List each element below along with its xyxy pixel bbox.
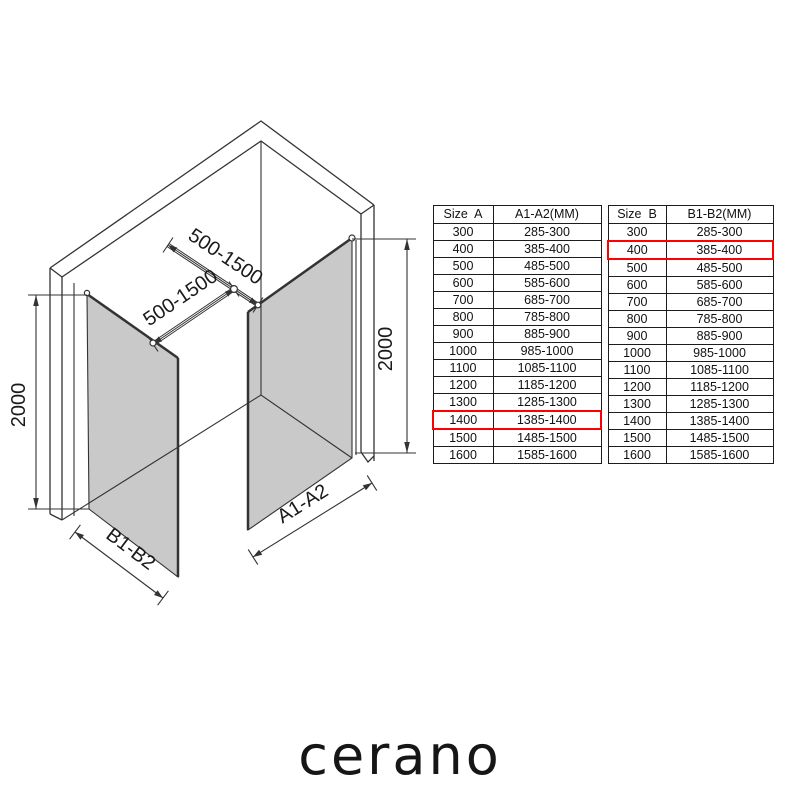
header-row: Size BB1-B2(MM): [608, 206, 773, 224]
table-row: 700685-700: [608, 294, 773, 311]
table-row: 700685-700: [433, 292, 601, 309]
table-row: 400385-400: [433, 241, 601, 258]
table-cell: 600: [608, 277, 666, 294]
table-row: 1000985-1000: [433, 343, 601, 360]
table-cell: 300: [433, 224, 493, 241]
table-cell: 1485-1500: [666, 430, 773, 447]
table-cell: 1000: [608, 345, 666, 362]
table-cell: 1285-1300: [493, 394, 601, 412]
table-row: 14001385-1400: [608, 413, 773, 430]
page: 2000 2000 500-1500 500-1500 B1-B2: [0, 0, 800, 800]
height-right-label: 2000: [375, 327, 397, 372]
table-cell: 1485-1500: [493, 429, 601, 447]
table-cell: 1400: [433, 411, 493, 429]
table-cell: 985-1000: [666, 345, 773, 362]
table-cell: 700: [433, 292, 493, 309]
table-cell: 285-300: [666, 224, 773, 242]
table-cell: 685-700: [666, 294, 773, 311]
glass-panel-a: [248, 238, 352, 530]
table-cell: 485-500: [493, 258, 601, 275]
column-header: Size A: [433, 206, 493, 224]
table-cell: 785-800: [493, 309, 601, 326]
table-row: 600585-600: [608, 277, 773, 294]
table-row: 13001285-1300: [608, 396, 773, 413]
table-cell: 1600: [608, 447, 666, 464]
table-cell: 700: [608, 294, 666, 311]
table-row: 11001085-1100: [608, 362, 773, 379]
table-row: 12001185-1200: [433, 377, 601, 394]
table-cell: 985-1000: [493, 343, 601, 360]
table-cell: 1085-1100: [666, 362, 773, 379]
table-row: 600585-600: [433, 275, 601, 292]
table-cell: 300: [608, 224, 666, 242]
table-row: 800785-800: [433, 309, 601, 326]
table-row: 300285-300: [433, 224, 601, 241]
column-header: B1-B2(MM): [666, 206, 773, 224]
table-row: 400385-400: [608, 241, 773, 259]
height-left-label: 2000: [8, 383, 30, 428]
table-row: 12001185-1200: [608, 379, 773, 396]
size-table-a: Size AA1-A2(MM)300285-300400385-40050048…: [432, 205, 602, 464]
table-cell: 1200: [433, 377, 493, 394]
dimension-height-left: 2000: [8, 295, 89, 509]
table-cell: 1385-1400: [493, 411, 601, 429]
table-row: 500485-500: [608, 259, 773, 277]
table-cell: 600: [433, 275, 493, 292]
table-cell: 1500: [608, 430, 666, 447]
table-cell: 1200: [608, 379, 666, 396]
table-row: 16001585-1600: [608, 447, 773, 464]
table-cell: 585-600: [493, 275, 601, 292]
table-row: 14001385-1400: [433, 411, 601, 429]
table-cell: 1285-1300: [666, 396, 773, 413]
table-cell: 385-400: [666, 241, 773, 259]
table-cell: 500: [433, 258, 493, 275]
table-cell: 1085-1100: [493, 360, 601, 377]
table-cell: 385-400: [493, 241, 601, 258]
table-cell: 1000: [433, 343, 493, 360]
table-cell: 1100: [608, 362, 666, 379]
shower-diagram: 2000 2000 500-1500 500-1500 B1-B2: [0, 0, 440, 640]
table-row: 11001085-1100: [433, 360, 601, 377]
table-cell: 1400: [608, 413, 666, 430]
table-cell: 885-900: [493, 326, 601, 343]
table-row: 900885-900: [433, 326, 601, 343]
table-cell: 1185-1200: [666, 379, 773, 396]
table-cell: 1585-1600: [666, 447, 773, 464]
table-cell: 400: [608, 241, 666, 259]
table-row: 300285-300: [608, 224, 773, 242]
table-cell: 1600: [433, 447, 493, 464]
table-row: 15001485-1500: [608, 430, 773, 447]
table-cell: 800: [433, 309, 493, 326]
table-cell: 585-600: [666, 277, 773, 294]
table-cell: 1300: [608, 396, 666, 413]
table-cell: 885-900: [666, 328, 773, 345]
table-row: 500485-500: [433, 258, 601, 275]
table-cell: 1185-1200: [493, 377, 601, 394]
table-cell: 1385-1400: [666, 413, 773, 430]
table-cell: 785-800: [666, 311, 773, 328]
size-table-b: Size BB1-B2(MM)300285-300400385-40050048…: [607, 205, 774, 464]
table-row: 1000985-1000: [608, 345, 773, 362]
table-cell: 1585-1600: [493, 447, 601, 464]
table-cell: 900: [433, 326, 493, 343]
table-cell: 1300: [433, 394, 493, 412]
table-cell: 1500: [433, 429, 493, 447]
table-cell: 1100: [433, 360, 493, 377]
table-cell: 400: [433, 241, 493, 258]
table-cell: 900: [608, 328, 666, 345]
brand-logo: cerano: [0, 724, 800, 787]
table-cell: 500: [608, 259, 666, 277]
table-row: 900885-900: [608, 328, 773, 345]
table-row: 16001585-1600: [433, 447, 601, 464]
table-cell: 285-300: [493, 224, 601, 241]
table-row: 800785-800: [608, 311, 773, 328]
column-header: Size B: [608, 206, 666, 224]
header-row: Size AA1-A2(MM): [433, 206, 601, 224]
table-cell: 485-500: [666, 259, 773, 277]
table-row: 15001485-1500: [433, 429, 601, 447]
table-cell: 685-700: [493, 292, 601, 309]
table-row: 13001285-1300: [433, 394, 601, 412]
column-header: A1-A2(MM): [493, 206, 601, 224]
table-cell: 800: [608, 311, 666, 328]
bar-bottom-label: 500-1500: [139, 265, 221, 331]
dimension-bar-bottom: 500-1500: [139, 265, 221, 331]
